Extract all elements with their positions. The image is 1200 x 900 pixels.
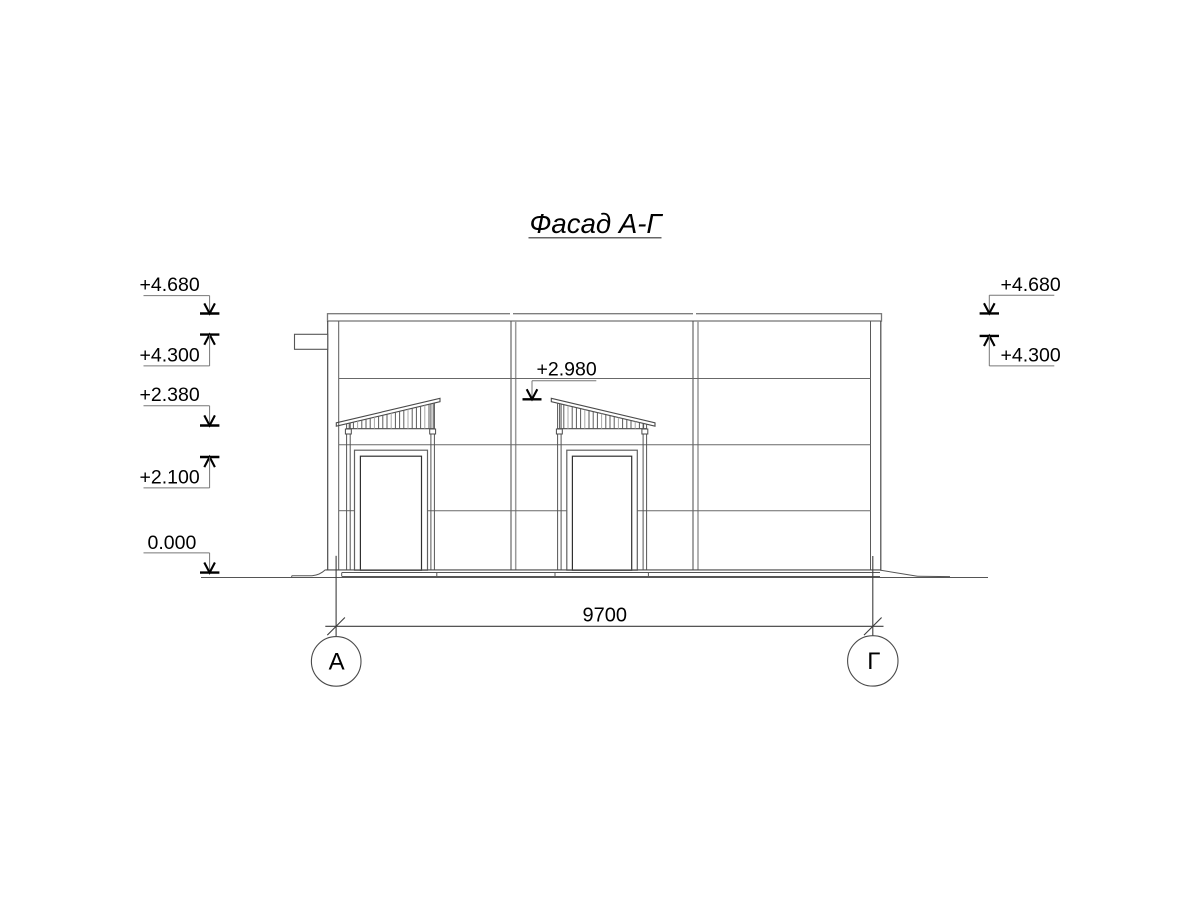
svg-text:0.000: 0.000 [148,532,197,554]
svg-text:+2.380: +2.380 [140,384,200,406]
svg-text:9700: 9700 [583,604,628,626]
svg-text:Фасад А-Г: Фасад А-Г [530,208,664,239]
svg-text:+2.980: +2.980 [537,359,597,381]
svg-text:+4.300: +4.300 [1001,345,1061,367]
svg-text:+4.300: +4.300 [140,345,200,367]
svg-text:А: А [329,648,345,675]
svg-text:+4.680: +4.680 [1001,274,1061,296]
svg-text:+2.100: +2.100 [140,466,200,488]
svg-text:Г: Г [867,648,880,675]
svg-text:+4.680: +4.680 [140,274,200,296]
